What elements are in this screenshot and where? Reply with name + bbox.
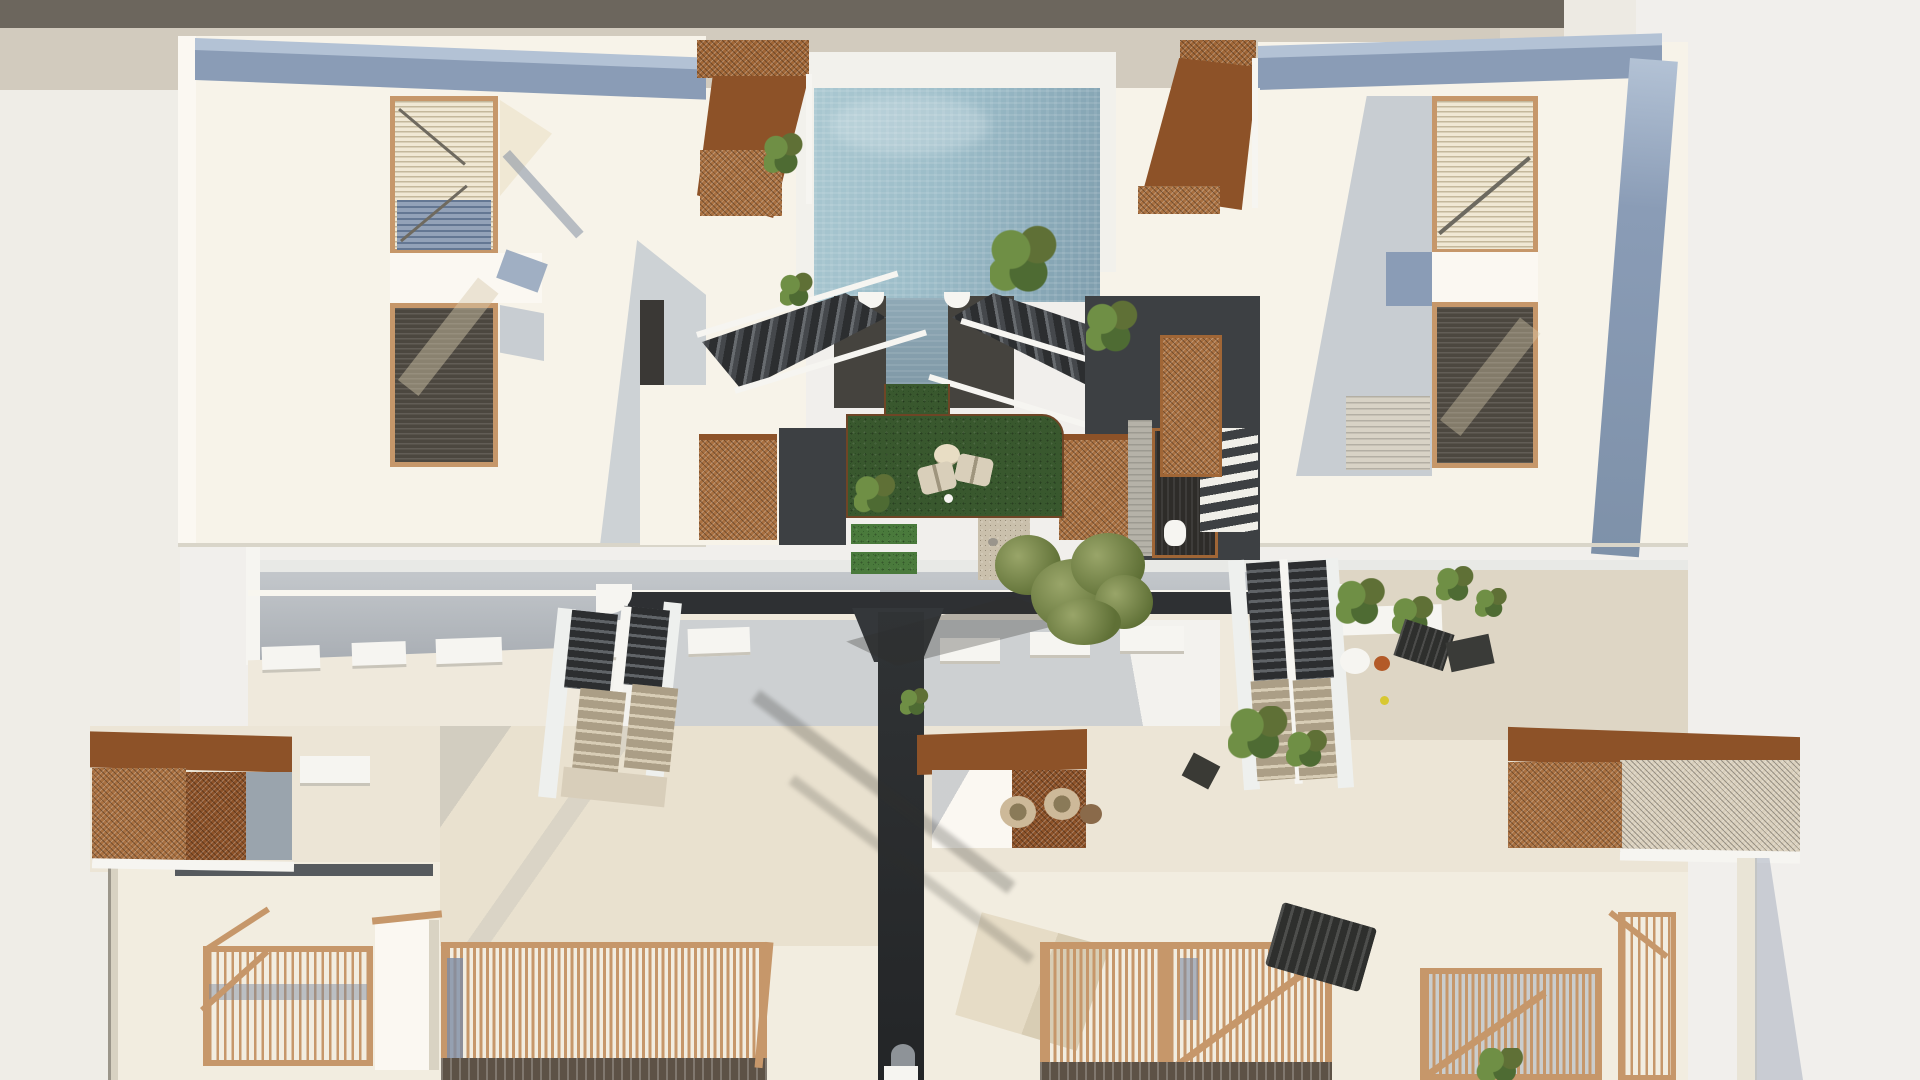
lawn-strip: [851, 524, 917, 544]
corten-court-pergola-left: [699, 434, 777, 540]
corten-canopy: [90, 731, 292, 772]
terrace-plant: [1336, 578, 1388, 626]
lawn-white-dot: [944, 494, 953, 503]
bush: [1476, 1048, 1528, 1080]
corten-canopy-mesh: [1508, 762, 1622, 848]
terrace-plant: [1228, 706, 1292, 760]
terrace-plant: [1286, 730, 1330, 768]
lower-left-wall-edge: [108, 862, 118, 1080]
wicker-chair: [1044, 788, 1080, 820]
walkway-ledge: [250, 560, 1336, 572]
balcony-fascia-box: [1386, 252, 1432, 306]
pergola-post: [806, 74, 812, 204]
wood-railing-balusters: [447, 948, 761, 1064]
terrace-plant: [1436, 566, 1476, 602]
plant-foliage: [780, 272, 814, 308]
terrace-plant: [1475, 588, 1509, 618]
plant-foliage: [764, 132, 804, 176]
lawn-bush: [854, 474, 898, 514]
railing-mid-post: [1160, 942, 1172, 1080]
path-arc-table: [891, 1044, 915, 1066]
wicker-table: [1080, 804, 1102, 824]
wicker-chair: [1000, 796, 1036, 828]
skylight-curb: [262, 645, 321, 673]
orange-pot: [1374, 656, 1390, 671]
balcony-shadow-wedge: [500, 305, 544, 361]
balcony-pier-shade: [429, 920, 439, 1070]
ground-slat-patch: [1346, 396, 1430, 470]
left-stair-flight-lower: [572, 688, 627, 776]
corten-canopy: [917, 729, 1087, 775]
pool-highlight: [830, 95, 990, 155]
right-building-base-line: [1258, 543, 1688, 547]
top-dark-band: [0, 0, 1570, 30]
corten-pergola-mesh-low: [1138, 186, 1220, 214]
railing-base-band: [441, 1058, 767, 1080]
skylight-curb: [352, 641, 407, 669]
right-stair-flight: [1288, 560, 1334, 680]
lawn-strip: [851, 552, 917, 574]
wood-railing-balusters: [209, 952, 367, 1060]
left-courtyard-paving: [779, 428, 846, 545]
corten-pergola-mesh: [697, 40, 809, 78]
palm-at-pool: [990, 225, 1060, 295]
corten-mid-panel: [1160, 335, 1222, 477]
railing-base-band: [1040, 1062, 1332, 1080]
railing-shadow-patch: [447, 958, 463, 1058]
skylight-curb: [688, 627, 751, 657]
left-building-edge-highlight: [178, 36, 196, 545]
tree-canopy-blob: [1047, 599, 1121, 645]
pergola-interior-shade: [246, 772, 292, 860]
corten-canopy-mesh-light: [1620, 760, 1800, 852]
pool-rim-right: [1098, 52, 1116, 272]
walkway-wall-left: [246, 545, 260, 665]
louver-panel-shadowed: [397, 200, 491, 250]
left-stair-flight: [564, 610, 618, 692]
plant-pot: [764, 132, 804, 176]
louver-panel: [1432, 96, 1538, 254]
pergola-post: [1252, 58, 1258, 208]
skylight-curb: [300, 756, 370, 786]
tree-canopy: [995, 515, 1155, 645]
corten-canopy-mesh-dark: [186, 772, 246, 860]
right-wall-shadow: [1755, 858, 1803, 1080]
path-door: [884, 1066, 918, 1080]
corten-canopy-mesh: [92, 768, 186, 864]
lemon-dot: [1380, 696, 1389, 705]
right-terrace-ledge: [1332, 560, 1688, 570]
skylight-curb: [436, 637, 503, 667]
pool-rim-top: [796, 52, 1116, 90]
left-building-base-line: [178, 543, 706, 547]
right-wall: [1737, 858, 1757, 1080]
balcony-band: [1432, 252, 1538, 302]
white-planter-pot: [1164, 520, 1186, 546]
courtyard-palm: [1086, 300, 1140, 354]
render-scene: [0, 0, 1920, 1080]
railing-shadow-patch: [1180, 958, 1198, 1020]
round-table: [1340, 648, 1370, 674]
bush: [900, 688, 930, 716]
left-stair-flight-lower: [624, 684, 679, 772]
